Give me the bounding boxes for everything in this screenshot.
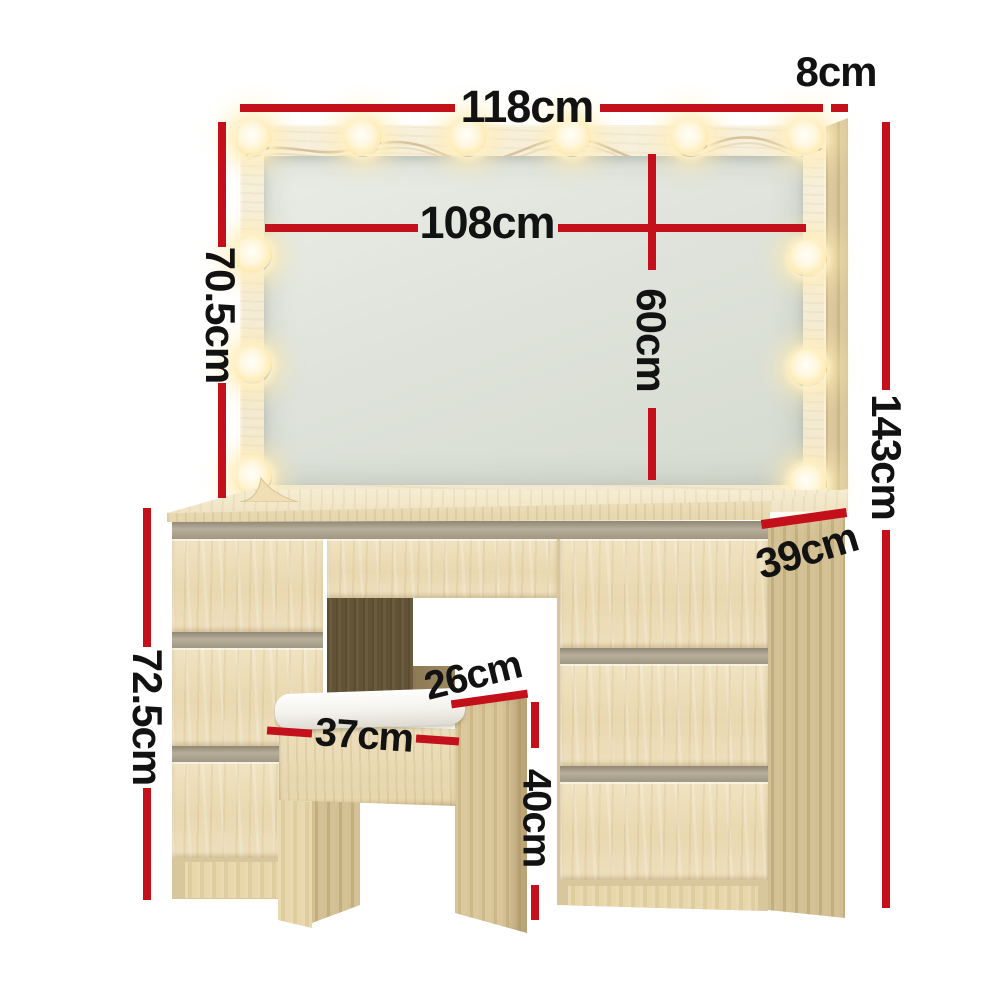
dimension-line-desk-height: [143, 788, 151, 900]
dim-label-glass-height: 60cm: [627, 288, 675, 391]
middle-drawer: [327, 539, 557, 598]
dimension-line-mirror-width: [600, 104, 823, 112]
stool-left-leg-inner-side: [312, 801, 360, 923]
light-bulb: [671, 119, 709, 157]
product-dimension-diagram: 118cm 8cm 108cm 70.5cm 60cm 143cm 39cm 7…: [0, 0, 1000, 1000]
dimension-line-desk-height: [143, 508, 151, 647]
dimension-line-stool-height: [531, 885, 539, 920]
light-bulb: [787, 119, 825, 157]
drawer: [172, 539, 323, 632]
drawer: [560, 539, 768, 648]
drawer-gap-strip: [560, 766, 768, 782]
dimension-line-frame-depth: [831, 104, 848, 112]
dim-label-stool-width: 37cm: [313, 710, 414, 762]
plinth: [568, 886, 758, 911]
kneehole-back-panel: [327, 598, 413, 695]
dim-label-mirror-height: 70.5cm: [196, 247, 244, 383]
drawer: [560, 782, 768, 880]
dimension-line-glass-height: [648, 154, 656, 270]
dim-label-mirror-width: 118cm: [461, 81, 594, 133]
dim-label-desk-height: 72.5cm: [123, 649, 171, 785]
dimension-line-glass-width: [558, 224, 806, 232]
dim-label-total-height: 143cm: [862, 394, 910, 520]
dimension-line-mirror-height: [218, 122, 226, 247]
light-bulb: [234, 119, 272, 157]
light-bulb: [789, 349, 827, 387]
stool-left-leg: [278, 800, 312, 928]
dimension-line-glass-width: [265, 224, 418, 232]
drawer: [560, 664, 768, 766]
light-bulb: [789, 239, 827, 277]
dim-label-glass-width: 108cm: [419, 197, 554, 249]
drawer-gap-strip: [172, 521, 768, 539]
mirror-corbel: [238, 476, 300, 502]
dimension-line-mirror-height: [218, 383, 226, 498]
dimension-line-total-height: [882, 122, 890, 390]
light-bulb: [344, 119, 382, 157]
dim-label-stool-height: 40cm: [514, 769, 559, 867]
drawer-gap-strip: [560, 648, 768, 664]
dim-label-frame-depth: 8cm: [795, 48, 876, 96]
dimension-line-total-height: [882, 530, 890, 908]
right-drawer-bank: [557, 539, 768, 911]
dimension-line-glass-height: [648, 408, 656, 480]
dimension-line-mirror-width: [240, 104, 455, 112]
drawer-gap-strip: [172, 632, 323, 648]
dimension-line-stool-height: [531, 702, 539, 748]
